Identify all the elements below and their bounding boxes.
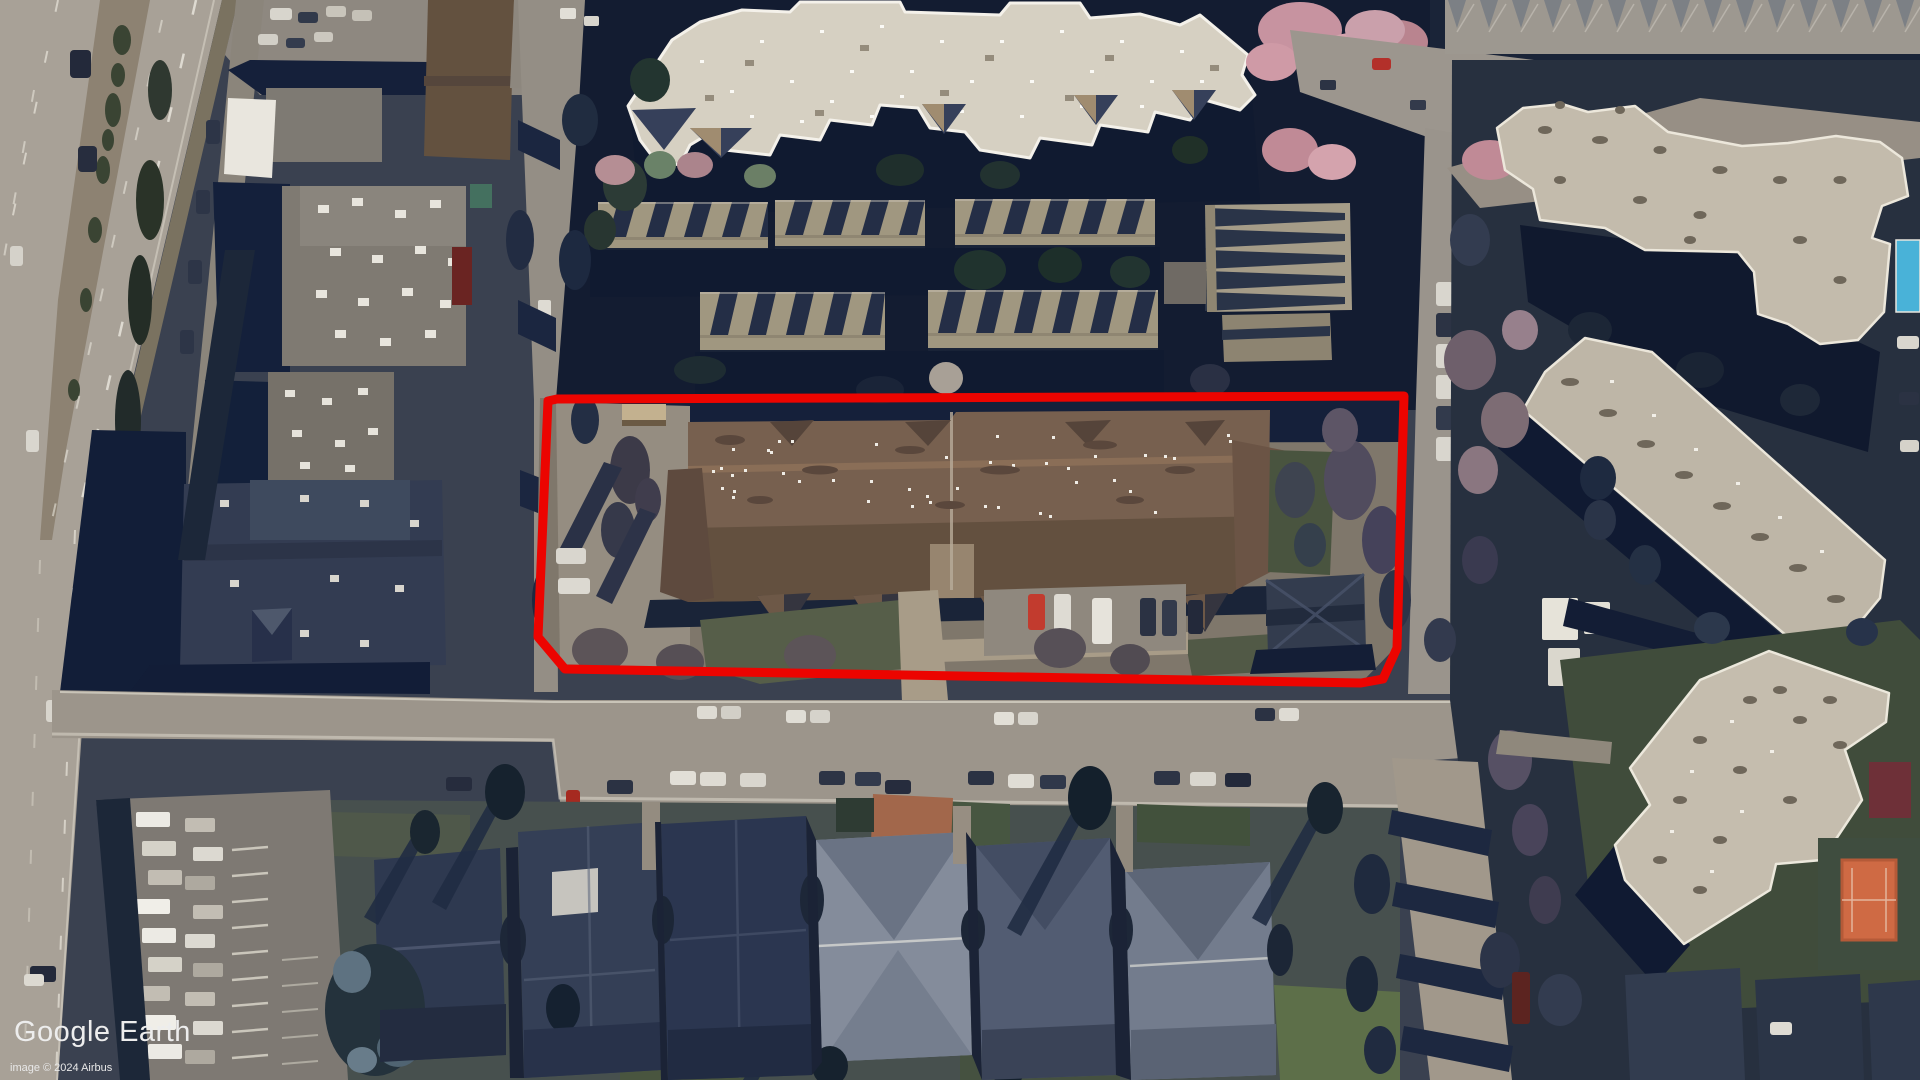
svg-text:Google Earth: Google Earth [14, 1016, 191, 1048]
svg-text:image © 2024 Airbus: image © 2024 Airbus [10, 1062, 113, 1074]
